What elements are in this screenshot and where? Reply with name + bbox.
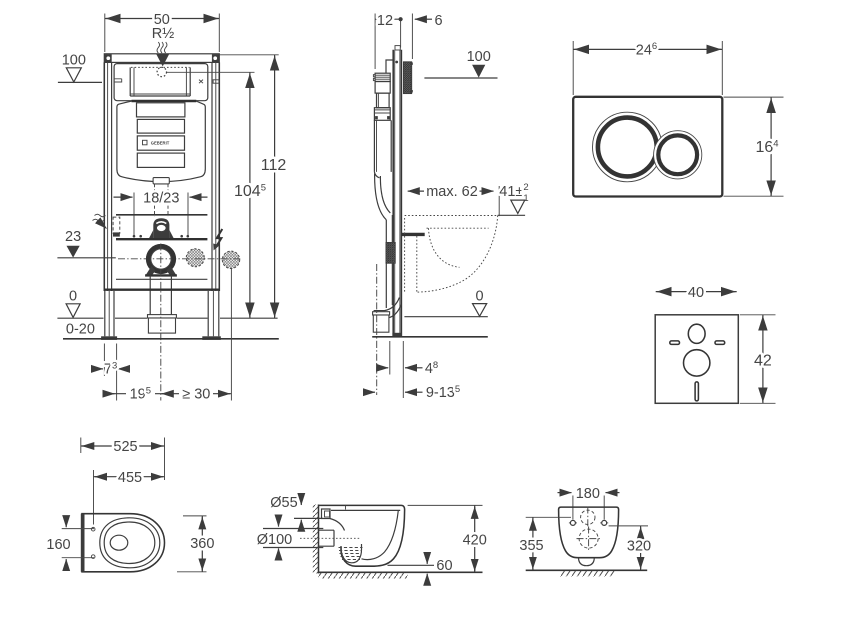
svg-text:9-135: 9-135 (426, 384, 460, 401)
svg-text:0: 0 (69, 289, 77, 305)
svg-text:6: 6 (434, 13, 442, 29)
svg-text:164: 164 (755, 139, 778, 157)
svg-text:420: 420 (463, 532, 487, 548)
svg-text:1045: 1045 (234, 183, 266, 201)
svg-text:246: 246 (636, 41, 657, 59)
svg-text:0: 0 (476, 289, 484, 305)
svg-text:GEBERIT: GEBERIT (151, 141, 170, 146)
svg-text:0-20: 0-20 (66, 322, 95, 338)
svg-text:160: 160 (46, 537, 70, 553)
svg-text:100: 100 (62, 53, 86, 69)
svg-text:max. 62: max. 62 (426, 184, 478, 200)
svg-text:73: 73 (104, 361, 117, 378)
svg-text:180: 180 (576, 486, 600, 502)
svg-text:525: 525 (113, 439, 137, 455)
svg-text:112: 112 (261, 157, 287, 174)
svg-text:320: 320 (627, 538, 651, 554)
svg-text:360: 360 (190, 536, 214, 552)
svg-text:42: 42 (754, 353, 772, 370)
svg-text:18/23: 18/23 (143, 190, 179, 206)
svg-text:23: 23 (65, 229, 81, 245)
svg-text:≥ 30: ≥ 30 (182, 387, 210, 403)
svg-text:Ø100: Ø100 (257, 532, 292, 548)
svg-text:195: 195 (130, 386, 151, 403)
svg-text:355: 355 (519, 538, 543, 554)
svg-text:12: 12 (377, 13, 393, 29)
svg-text:48: 48 (425, 360, 438, 377)
svg-text:Ø55: Ø55 (270, 495, 297, 511)
svg-text:100: 100 (467, 49, 491, 65)
svg-text:40: 40 (688, 285, 704, 301)
svg-text:455: 455 (118, 470, 142, 486)
svg-text:R½: R½ (152, 26, 175, 42)
